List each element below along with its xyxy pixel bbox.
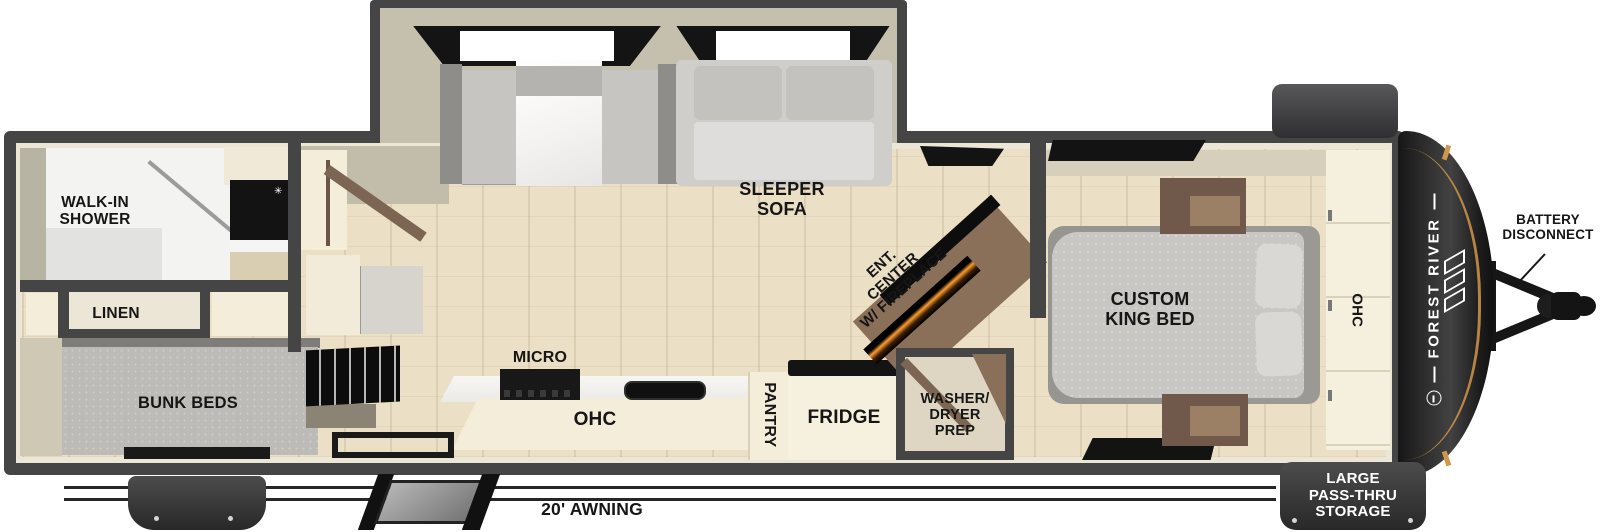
- bedroom-ohc-label: OHC: [1348, 280, 1365, 340]
- dinette-bench-back-right: [658, 64, 678, 184]
- micro-label: MICRO: [492, 349, 588, 367]
- awning-label: 20' AWNING: [512, 500, 672, 519]
- hall-dresser-cream: [306, 255, 360, 335]
- sofa-back-cushion-right: [786, 66, 874, 120]
- floorplan: ✳: [0, 0, 1600, 532]
- rear-shelf: [26, 293, 60, 335]
- vanity-base: [230, 252, 294, 280]
- brand-name: FOREST RIVER: [1426, 218, 1443, 359]
- sleeper-sofa-label: SLEEPER SOFA: [702, 180, 862, 220]
- hall-dresser-gray: [360, 266, 423, 334]
- forest-river-stripes-icon: [1444, 250, 1465, 312]
- dinette-table-runner: [516, 66, 602, 96]
- entry-steps: [368, 474, 498, 530]
- propane-cover: [1272, 84, 1398, 138]
- wardrobe-handle: [1328, 390, 1332, 401]
- latch-icon: [1292, 518, 1297, 523]
- hall-upper-cabinet: [301, 150, 347, 250]
- wardrobe-base: [306, 404, 376, 428]
- forest-river-emblem-icon: [1427, 390, 1442, 405]
- latch-icon: [1408, 518, 1413, 523]
- battery-disconnect-label: BATTERY DISCONNECT: [1496, 213, 1600, 243]
- linen-side-shelf: [212, 292, 294, 336]
- pass-thru-storage-label: LARGE PASS-THRU STORAGE: [1309, 471, 1397, 521]
- dinette-cushion-right: [602, 70, 658, 184]
- wardrobe-handle: [1328, 300, 1332, 311]
- shower-pan: [46, 228, 162, 280]
- pillow-bottom: [1255, 311, 1303, 377]
- stove-burners: [504, 390, 576, 397]
- pillow-top: [1255, 243, 1303, 309]
- dinette-cushion-left: [462, 70, 516, 185]
- vanity-ledge: [230, 240, 294, 252]
- kitchen-ohc-label: OHC: [535, 410, 655, 431]
- walk-in-shower-label: WALK-IN SHOWER: [28, 194, 162, 228]
- bunk-floor-strip: [20, 338, 62, 456]
- faucet-icon: ✳: [274, 186, 282, 197]
- sofa-seat: [694, 122, 874, 180]
- latch-icon: [228, 516, 233, 521]
- linen-label: LINEN: [64, 305, 168, 322]
- dinette-bench-back-left: [440, 64, 462, 184]
- nightstand-top-door: [1190, 196, 1240, 226]
- sofa-back-cushion-left: [694, 66, 782, 120]
- latch-icon: [154, 516, 159, 521]
- pantry-label: PANTRY: [760, 369, 778, 461]
- bunk-floor-mark: [124, 447, 270, 459]
- logo-dash: [1433, 194, 1435, 210]
- logo-dash: [1433, 366, 1435, 382]
- entry-door-mat: [332, 432, 454, 458]
- kitchen-sink: [624, 381, 706, 400]
- bathroom-wall-right: [288, 133, 301, 352]
- wardrobe-hanging: [304, 345, 400, 406]
- washer-dryer-label: WASHER/ DRYER PREP: [896, 392, 1014, 440]
- window-pane: [716, 31, 849, 61]
- window-pane: [460, 31, 615, 61]
- forest-river-logo: FOREST RIVER: [1426, 150, 1443, 450]
- battery-callout-line: [1518, 254, 1545, 283]
- fridge-label: FRIDGE: [788, 408, 900, 429]
- bedroom-wall: [1030, 140, 1046, 318]
- bedroom-window-top: [1048, 140, 1206, 161]
- bathroom-wall-bottom: [20, 280, 301, 292]
- wardrobe-handle: [1328, 210, 1332, 221]
- bunk-beds-label: BUNK BEDS: [118, 394, 258, 412]
- underbody-storage-compartment: [128, 476, 266, 530]
- nightstand-bottom-door: [1190, 406, 1240, 436]
- pass-thru-storage-box: LARGE PASS-THRU STORAGE: [1280, 462, 1426, 530]
- vanity-sink-top: [230, 180, 294, 242]
- custom-king-bed-label: CUSTOM KING BED: [1060, 290, 1240, 330]
- hall-top-window: [920, 146, 1004, 166]
- fridge-top: [788, 360, 900, 376]
